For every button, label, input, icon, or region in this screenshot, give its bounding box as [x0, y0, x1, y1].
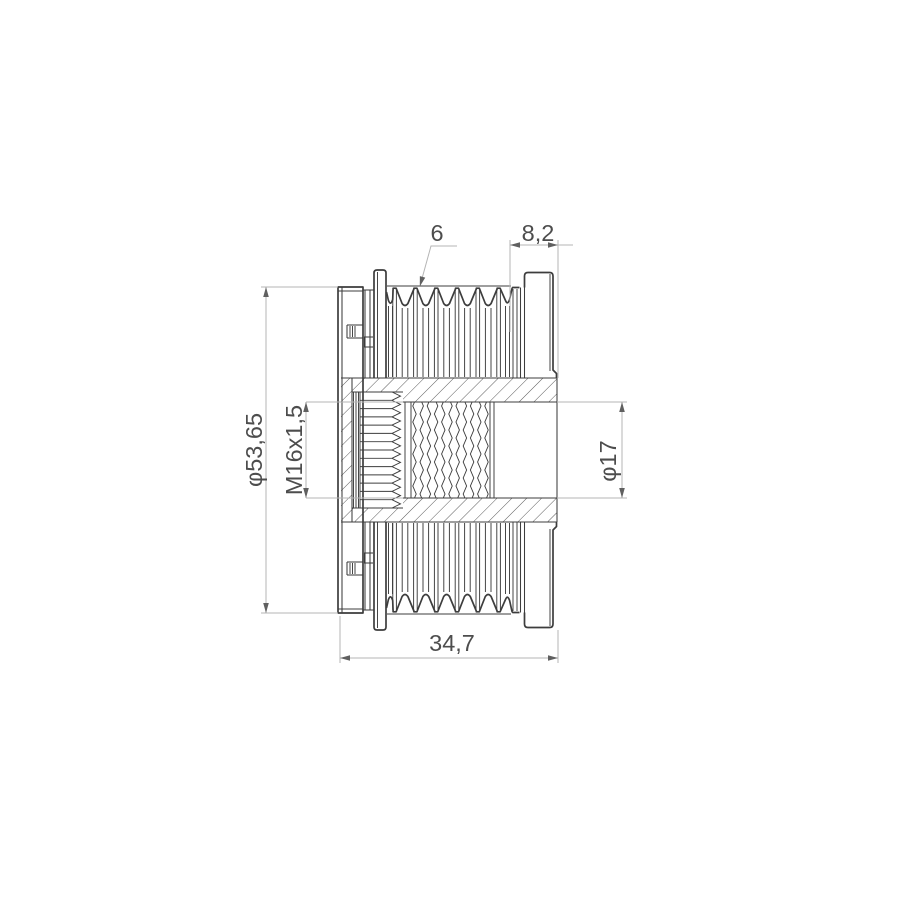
label-outer-diameter: φ53,65: [241, 413, 267, 487]
label-end-section-width: 8,2: [522, 220, 555, 246]
drawing-canvas: 6 8,2 φ53,65 M16x1,5 φ17 34,7: [0, 0, 900, 900]
label-bore-diameter: φ17: [595, 440, 621, 481]
pulley-upper-half-profile: [338, 270, 557, 378]
pulley-lower-half-profile: [338, 522, 557, 630]
label-rib-count: 6: [430, 220, 443, 246]
technical-drawing-alternator-pulley-section: 6 8,2 φ53,65 M16x1,5 φ17 34,7: [0, 0, 900, 900]
label-overall-width: 34,7: [429, 630, 475, 656]
dimension-labels: 6 8,2 φ53,65 M16x1,5 φ17 34,7: [241, 220, 621, 656]
label-thread-spec: M16x1,5: [281, 405, 307, 495]
